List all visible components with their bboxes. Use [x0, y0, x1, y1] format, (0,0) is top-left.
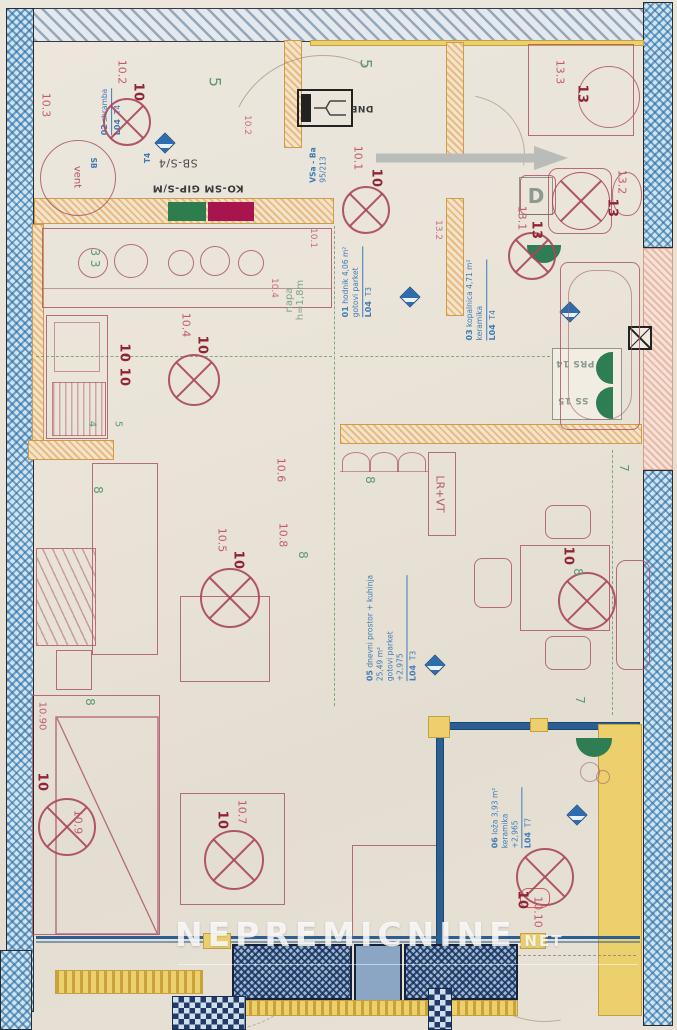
room-label-13-1: 13.1	[516, 206, 529, 231]
kitchen-sink-circle	[114, 244, 148, 278]
d-door-label: D	[528, 184, 545, 208]
note-name: loža	[490, 820, 499, 835]
green-mark: 8	[296, 551, 310, 559]
watermark: NEPREMICNINE.NET	[175, 915, 563, 954]
exterior-wall-left	[6, 8, 34, 1012]
exterior-wall-top	[8, 8, 660, 42]
ko-sm-label: KO-SM GIP-S/M	[152, 183, 243, 194]
room-label-10-3: 10.3	[40, 93, 53, 118]
dining-chair	[474, 558, 512, 608]
note-tag: T4	[488, 310, 497, 319]
note-elev: +2,965	[511, 788, 521, 849]
room-label-10-7: 10.7	[236, 800, 249, 825]
note-area: 4,06 m²	[341, 247, 350, 276]
room-stamp-13: 13	[605, 198, 620, 217]
green-mark: 4	[87, 421, 98, 427]
sill-left	[55, 970, 203, 994]
dining-chair	[545, 636, 591, 670]
light-symbol-10-9	[38, 798, 96, 856]
note-code: L04	[488, 324, 497, 340]
section-line-vertical	[334, 226, 335, 706]
note-area: 3,93 m²	[490, 788, 499, 817]
t4-tag: T4	[143, 153, 153, 163]
dimension-10-90: 10.90	[37, 702, 48, 731]
balcony-right-wall	[598, 724, 642, 1016]
room-label-13-2-small: 13.2	[433, 220, 443, 240]
checker-block	[172, 996, 246, 1030]
note-area: 25,49 m²	[376, 575, 386, 681]
note-dnevni: 05 dnevni prostor + kuhinja 25,49 m² got…	[365, 575, 418, 681]
light-symbol-10-1	[342, 186, 390, 234]
note-loza: 06 loža 3,93 m² keramika +2,965 L04 T7	[490, 788, 533, 849]
room-label-10-9: 10.9	[72, 810, 85, 835]
balcony-post	[530, 718, 548, 732]
watermark-name: NEPREMICNINE	[175, 915, 517, 954]
closet-small	[56, 650, 92, 690]
room-label-13-3: 13.3	[554, 60, 567, 85]
balcony-post	[428, 716, 450, 738]
bathtub-inner	[568, 270, 632, 420]
room-stamp-kitchen: 10 10	[117, 343, 132, 386]
note-num: 01	[341, 306, 350, 317]
floorplan-scan: PRS 14 SS 15 DNE SB-S/4 KO-SM GIP-S/M ve…	[0, 0, 677, 1030]
note-name: hodnik	[341, 278, 350, 303]
hall-bath-wall-lower	[446, 198, 464, 316]
note-code: L04	[364, 301, 373, 317]
green-mark: 8	[91, 486, 105, 494]
sofa-base	[340, 452, 428, 472]
note-tag: T7	[523, 818, 532, 827]
light-symbol-10-7	[204, 830, 264, 890]
stove-burner	[200, 246, 230, 276]
room-stamp-10: 10	[369, 168, 384, 187]
watermark-rule	[178, 964, 638, 965]
green-mark: 8	[83, 698, 97, 706]
green-mark: 8	[363, 476, 377, 484]
room-stamp-10: 10	[35, 772, 50, 791]
window-sill	[232, 1000, 518, 1016]
room-stamp-10: 10	[131, 82, 146, 101]
room-stamp-13: 13	[575, 84, 590, 103]
green-mark: 8	[571, 568, 585, 576]
green-mark: 5	[113, 421, 124, 427]
sofa-right	[616, 560, 650, 670]
light-symbol-10-5	[200, 568, 260, 628]
vent-label: vent	[72, 166, 83, 188]
napa-text: napa	[284, 280, 295, 320]
room-stamp-10: 10	[231, 550, 246, 569]
room-stamp-10: 10	[195, 335, 210, 354]
note-finish: keramika	[476, 260, 486, 341]
room-label-10-4: 10.4	[180, 313, 193, 338]
light-symbol-dining	[558, 572, 616, 630]
lr-vt-label: LR+VT	[434, 475, 447, 512]
room-label-10-2: 10.2	[116, 60, 129, 85]
photo-marker	[424, 654, 445, 675]
oven-inner	[54, 322, 100, 372]
room-stamp-dining: 10	[561, 546, 576, 565]
note-num: 03	[465, 329, 474, 340]
green-mark: 5	[206, 77, 225, 87]
direction-arrow	[372, 142, 572, 178]
green-mark: 5	[357, 59, 376, 69]
exterior-wall-right-bottom	[643, 470, 673, 1026]
photo-marker	[154, 132, 175, 153]
room-label-10-2-small: 10.2	[242, 115, 252, 135]
room-label-10-1: 10.1	[352, 146, 365, 171]
exterior-wall-right-mid	[643, 248, 673, 470]
below-kitchen-wall	[28, 440, 114, 460]
checker-block-small	[428, 988, 452, 1030]
room-stamp-13: 13	[529, 220, 544, 239]
dining-chair	[545, 505, 591, 539]
stove-burner	[238, 250, 264, 276]
exterior-wall-right-top	[643, 2, 673, 248]
light-symbol-10-2	[103, 98, 151, 146]
photo-marker	[566, 804, 587, 825]
note-name: dnevni prostor + kuhinja	[365, 575, 374, 668]
room-label-13-2: 13.2	[616, 170, 629, 195]
axis-line-vertical	[612, 450, 613, 715]
photo-marker	[399, 286, 420, 307]
washing-machine-drum	[552, 172, 610, 230]
green-mark: 7	[573, 696, 587, 704]
note-tag: T3	[364, 287, 373, 296]
room-label-10-8: 10.8	[277, 523, 290, 548]
room-label-10-6: 10.6	[275, 458, 288, 483]
note-hodnik: 01 hodnik 4,06 m² gotovi parket L04 T3	[341, 247, 375, 318]
sb-s4-label: SB-S/4	[158, 157, 197, 170]
balcony-circle	[596, 770, 610, 784]
watermark-tld: .NET	[517, 932, 564, 950]
sb-label: SB	[88, 157, 98, 168]
note-kopalnica: 03 kopalnica 4,71 m² keramika L04 T4	[465, 260, 499, 341]
note-num: 06	[490, 837, 499, 848]
note-finish: gotovi parket	[352, 247, 362, 318]
napa-height: h=1,8m	[295, 280, 306, 320]
corner-block-bottom-left	[0, 950, 32, 1030]
green-mark: 3 3	[88, 248, 102, 267]
note-tag: T3	[408, 651, 417, 660]
note-finish: gotovi parket	[386, 575, 396, 681]
room-stamp-10: 10	[215, 810, 230, 829]
note-code: L04	[408, 665, 417, 681]
note-elev: +2,975	[395, 575, 405, 681]
note-finish: keramika	[501, 788, 511, 849]
room-label-10-4-small: 10.4	[269, 278, 279, 298]
room-label-10-1-small: 10.1	[308, 228, 318, 248]
dishwasher-hatch	[52, 382, 106, 436]
section-line-horizontal	[340, 356, 550, 357]
napa-note: napa h=1,8m	[284, 280, 306, 320]
green-mark: 7	[617, 464, 631, 472]
note-name: kopalnica	[465, 291, 474, 327]
note-area: 4,71 m²	[465, 260, 474, 289]
wardrobe-hangers	[36, 548, 96, 646]
swatch-green	[168, 202, 206, 221]
room-stamp-10: 10	[515, 890, 530, 909]
stove-burner	[168, 250, 194, 276]
room-label-10-5: 10.5	[216, 528, 229, 553]
light-symbol-10-4	[168, 354, 220, 406]
note-num: 05	[365, 670, 374, 681]
